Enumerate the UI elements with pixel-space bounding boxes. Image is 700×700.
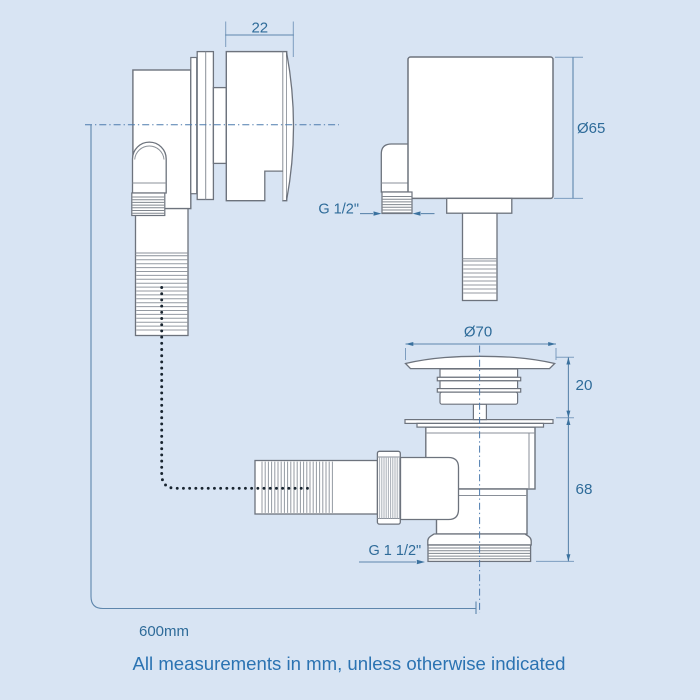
svg-text:Ø70: Ø70 xyxy=(464,324,492,341)
svg-text:22: 22 xyxy=(251,20,268,37)
svg-text:G 1/2": G 1/2" xyxy=(318,202,359,218)
svg-text:G 1 1/2": G 1 1/2" xyxy=(369,543,422,559)
svg-text:20: 20 xyxy=(576,377,593,394)
svg-text:68: 68 xyxy=(576,481,593,498)
svg-text:Ø65: Ø65 xyxy=(577,120,605,137)
svg-text:600mm: 600mm xyxy=(139,623,189,640)
svg-text:All measurements in mm, unless: All measurements in mm, unless otherwise… xyxy=(132,653,565,674)
